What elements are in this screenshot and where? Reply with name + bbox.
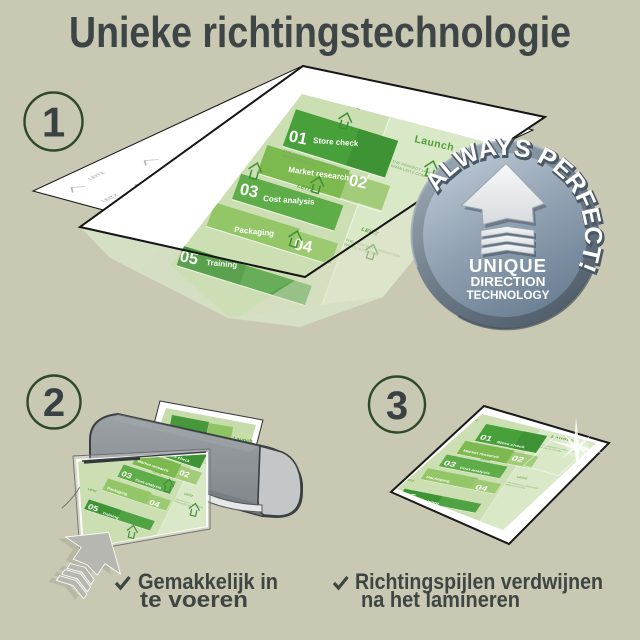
svg-text:1: 1	[42, 99, 65, 146]
svg-text:01: 01	[287, 127, 309, 148]
svg-text:UNIQUE: UNIQUE	[469, 255, 547, 276]
svg-text:na het lamineren: na het lamineren	[361, 587, 520, 612]
svg-text:DIRECTION: DIRECTION	[471, 274, 546, 289]
svg-text:TECHNOLOGY: TECHNOLOGY	[467, 288, 550, 302]
svg-text:03: 03	[238, 180, 260, 201]
svg-text:3: 3	[386, 384, 408, 428]
svg-text:02: 02	[347, 171, 369, 192]
svg-text:Unieke richtingstechnologie: Unieke richtingstechnologie	[69, 8, 571, 57]
svg-text:te voeren: te voeren	[140, 587, 248, 612]
svg-text:2: 2	[43, 381, 65, 425]
